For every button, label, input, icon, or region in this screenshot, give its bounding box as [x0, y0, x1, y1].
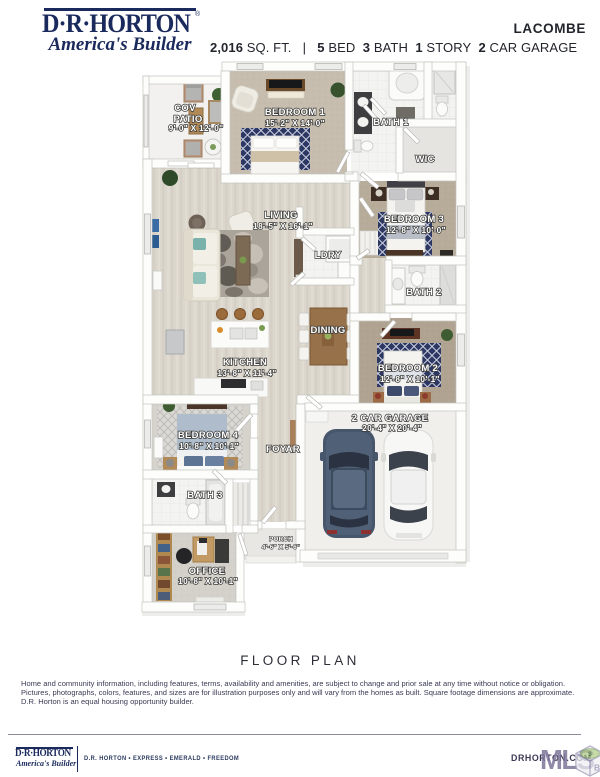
svg-text:BEDROOM 2: BEDROOM 2: [378, 363, 438, 374]
svg-text:10'-8" X 10'-1": 10'-8" X 10'-1": [179, 441, 239, 451]
svg-text:12'-8" X 10'-0": 12'-8" X 10'-0": [386, 225, 446, 235]
svg-text:$: $: [588, 751, 592, 758]
svg-text:BEDROOM 4: BEDROOM 4: [178, 430, 239, 441]
svg-text:PORCH: PORCH: [269, 536, 293, 543]
svg-text:9'-0" X 12'-0": 9'-0" X 12'-0": [169, 123, 224, 133]
svg-text:10'-8" X 10'-1": 10'-8" X 10'-1": [178, 576, 238, 586]
svg-text:4'-6" X 5'-6": 4'-6" X 5'-6": [262, 544, 300, 551]
svg-text:13'-8" X 11'-4": 13'-8" X 11'-4": [217, 368, 276, 378]
svg-text:BATH 1: BATH 1: [373, 117, 409, 128]
svg-text:B: B: [594, 762, 600, 772]
svg-text:WIC: WIC: [415, 154, 434, 165]
svg-text:15'-2" X 14'-0": 15'-2" X 14'-0": [265, 118, 325, 128]
svg-text:COV: COV: [174, 103, 196, 114]
svg-text:18'-5" X 16'-1": 18'-5" X 16'-1": [253, 221, 313, 231]
svg-text:LIVING: LIVING: [264, 210, 297, 221]
svg-text:LDRY: LDRY: [315, 250, 342, 261]
svg-text:12'-8" X 10'-1": 12'-8" X 10'-1": [380, 374, 440, 384]
svg-text:BATH 2: BATH 2: [406, 287, 441, 298]
svg-text:DINING: DINING: [310, 325, 345, 336]
svg-text:BEDROOM 3: BEDROOM 3: [384, 214, 444, 225]
svg-text:20'-4" X 20'-4": 20'-4" X 20'-4": [362, 423, 422, 433]
svg-text:FOYAR: FOYAR: [266, 444, 300, 455]
svg-text:BATH 3: BATH 3: [187, 490, 222, 501]
svg-text:BEDROOM 1: BEDROOM 1: [265, 107, 326, 118]
svg-text:KITCHEN: KITCHEN: [223, 357, 267, 368]
